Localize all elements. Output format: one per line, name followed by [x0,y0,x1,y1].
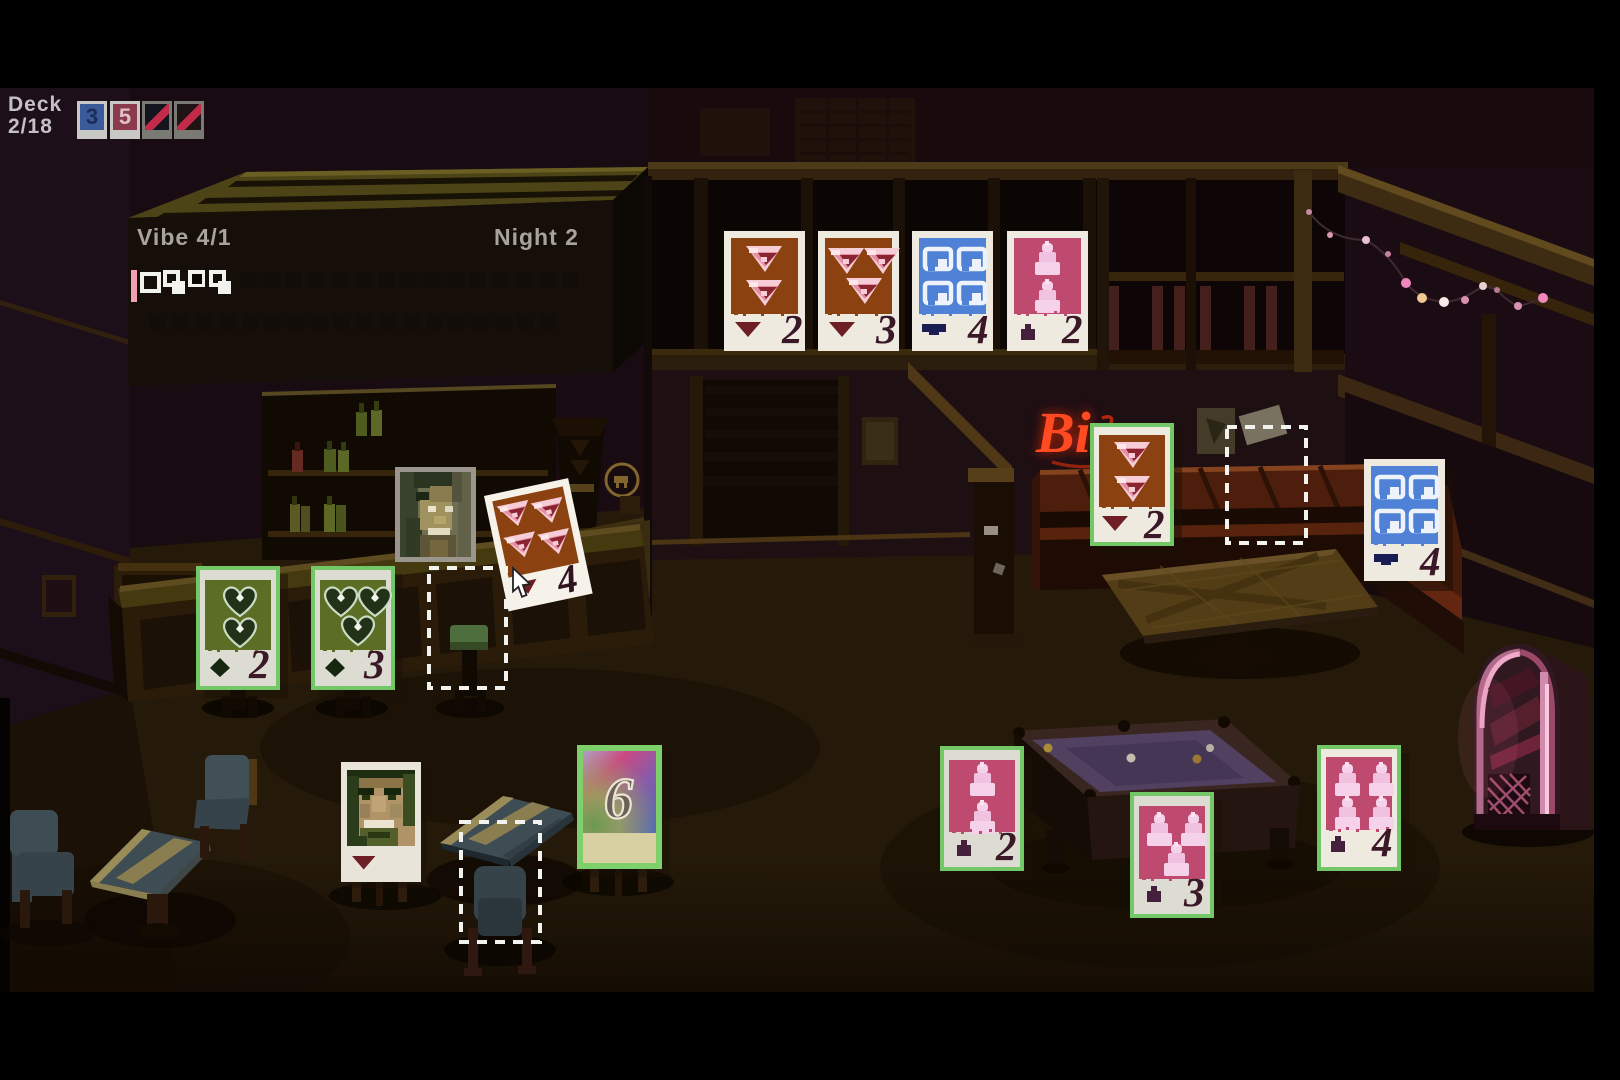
svg-text:2: 2 [248,641,270,687]
svg-text:2: 2 [1061,306,1083,352]
svg-text:4: 4 [1371,819,1393,865]
svg-text:2: 2 [781,306,803,352]
svg-text:3: 3 [363,641,385,687]
svg-text:2: 2 [995,823,1017,869]
svg-text:6: 6 [604,766,633,831]
svg-text:4: 4 [967,306,989,352]
svg-text:2: 2 [1143,501,1165,547]
svg-text:3: 3 [875,306,897,352]
svg-text:4: 4 [1419,538,1441,584]
svg-text:3: 3 [1183,869,1205,915]
